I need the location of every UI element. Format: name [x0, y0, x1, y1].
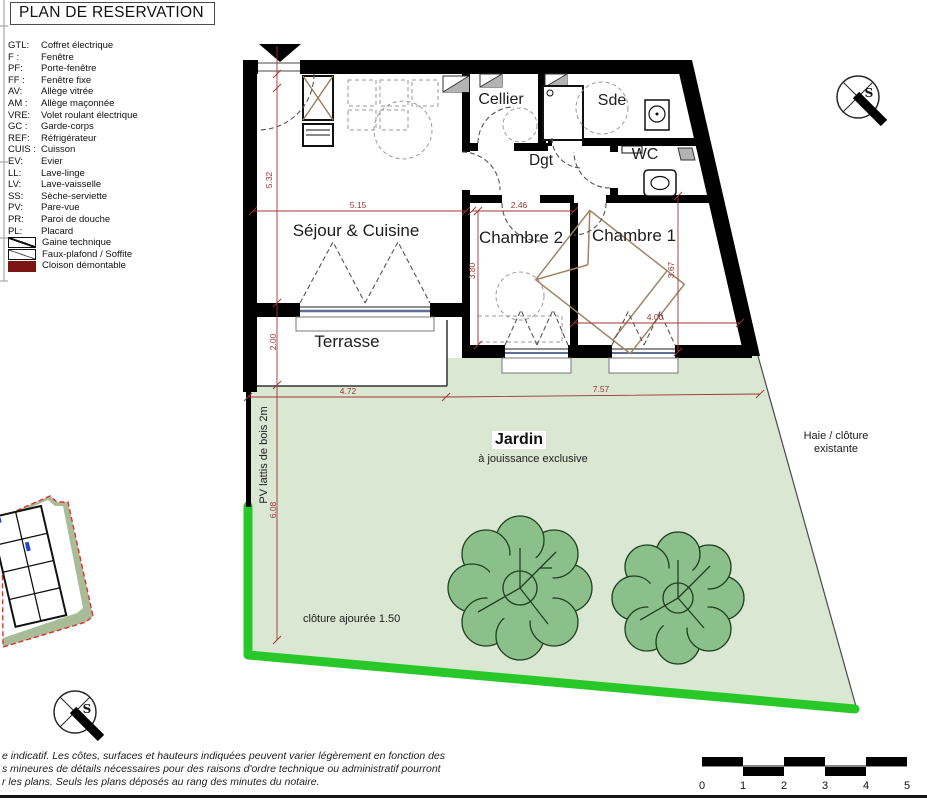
compass-south-letter-bottom: S — [83, 702, 92, 716]
dim-chambre1-w: 4.00 — [647, 312, 664, 322]
scale-label-3: 3 — [822, 780, 828, 792]
faux-plafond-swatch — [8, 249, 36, 260]
scale-bar — [702, 757, 907, 776]
floor-plan-svg — [0, 0, 927, 800]
tree-right — [612, 532, 744, 664]
room-label-chambre1: Chambre 1 — [592, 226, 676, 246]
scale-label-5: 5 — [904, 780, 910, 792]
dim-sejour-w: 5.15 — [350, 200, 367, 210]
dim-chambre2-h: 3.80 — [467, 263, 477, 280]
legend-item: CUIS :Cuisson — [8, 144, 138, 156]
legend-symbol-gaine: Gaine technique — [8, 237, 138, 249]
legend-item: AV:Allège vitrée — [8, 86, 138, 98]
legend-item: PL:Placard — [8, 226, 138, 238]
cloture-label: clôture ajourée 1.50 — [303, 613, 400, 625]
scale-label-4: 4 — [863, 780, 869, 792]
legend-panel: GTL:Coffret électrique F :Fenêtre PF:Por… — [8, 40, 138, 272]
dim-chambre1-h: 3.67 — [666, 262, 676, 279]
legend-item: F :Fenêtre — [8, 52, 138, 64]
legend-item: PF:Porte-fenêtre — [8, 63, 138, 75]
legend-symbol-faux-plafond: Faux-plafond / Soffite — [8, 249, 138, 261]
room-label-chambre2: Chambre 2 — [479, 228, 563, 248]
scale-label-2: 2 — [781, 780, 787, 792]
room-label-sde: Sde — [598, 92, 626, 110]
page-title: PLAN DE RESERVATION — [10, 2, 215, 25]
dim-terrasse-h: 2.00 — [268, 334, 278, 351]
legend-item: FF :Fenêtre fixe — [8, 75, 138, 87]
legend-item: REF:Réfrigérateur — [8, 133, 138, 145]
legend-item: AM :Allège maçonnée — [8, 98, 138, 110]
room-label-sejour: Séjour & Cuisine — [293, 221, 420, 241]
room-label-cellier: Cellier — [478, 91, 523, 109]
dim-chambre2-w: 2.46 — [511, 200, 528, 210]
legend-symbol-cloison: Cloison démontable — [8, 260, 138, 272]
page-title-text: PLAN DE RESERVATION — [19, 4, 204, 21]
dim-jardin-h: 6.08 — [268, 502, 278, 519]
bottom-rule — [0, 795, 927, 798]
hedge-label: Haie / clôture existante — [804, 430, 869, 456]
dim-sejour-h: 5.32 — [264, 172, 274, 189]
legend-item: LL:Lave-linge — [8, 168, 138, 180]
legend-item: SS:Sèche-serviette — [8, 191, 138, 203]
legend-item: LV:Lave-vaisselle — [8, 179, 138, 191]
pv-lattis-label: PV lattis de bois 2m — [258, 406, 270, 503]
disclaimer-text: e indicatif. Les côtes, surfaces et haut… — [2, 750, 445, 789]
gaine-technique-swatch — [8, 237, 36, 248]
legend-item: PV:Pare-vue — [8, 202, 138, 214]
legend-item: EV:Evier — [8, 156, 138, 168]
room-label-terrasse: Terrasse — [314, 332, 379, 352]
scale-label-0: 0 — [699, 780, 705, 792]
compass-north-top — [837, 76, 884, 123]
legend-item: GTL:Coffret électrique — [8, 40, 138, 52]
compass-south-letter-top: S — [865, 86, 874, 100]
cloison-demontable-swatch — [8, 261, 36, 272]
scale-label-1: 1 — [740, 780, 746, 792]
room-label-wc: WC — [632, 146, 659, 164]
tree-left — [448, 516, 592, 660]
entry-marker — [259, 44, 301, 62]
garden-label: Jardin — [492, 431, 546, 449]
legend-item: GC :Garde-corps — [8, 121, 138, 133]
room-label-dgt: Dgt — [529, 152, 553, 170]
legend-item: PR:Paroi de douche — [8, 214, 138, 226]
garden-sublabel: à jouissance exclusive — [478, 453, 587, 465]
dim-jardin-w-left: 4.72 — [340, 386, 357, 396]
compass-north-bottom — [54, 691, 101, 738]
page-frame-lines — [0, 0, 8, 281]
plan-de-reservation-page: PLAN DE RESERVATION GTL:Coffret électriq… — [0, 0, 927, 800]
dim-jardin-w-right: 7.57 — [593, 384, 610, 394]
legend-item: VRE:Volet roulant électrique — [8, 110, 138, 122]
site-plan-inset — [0, 496, 93, 647]
